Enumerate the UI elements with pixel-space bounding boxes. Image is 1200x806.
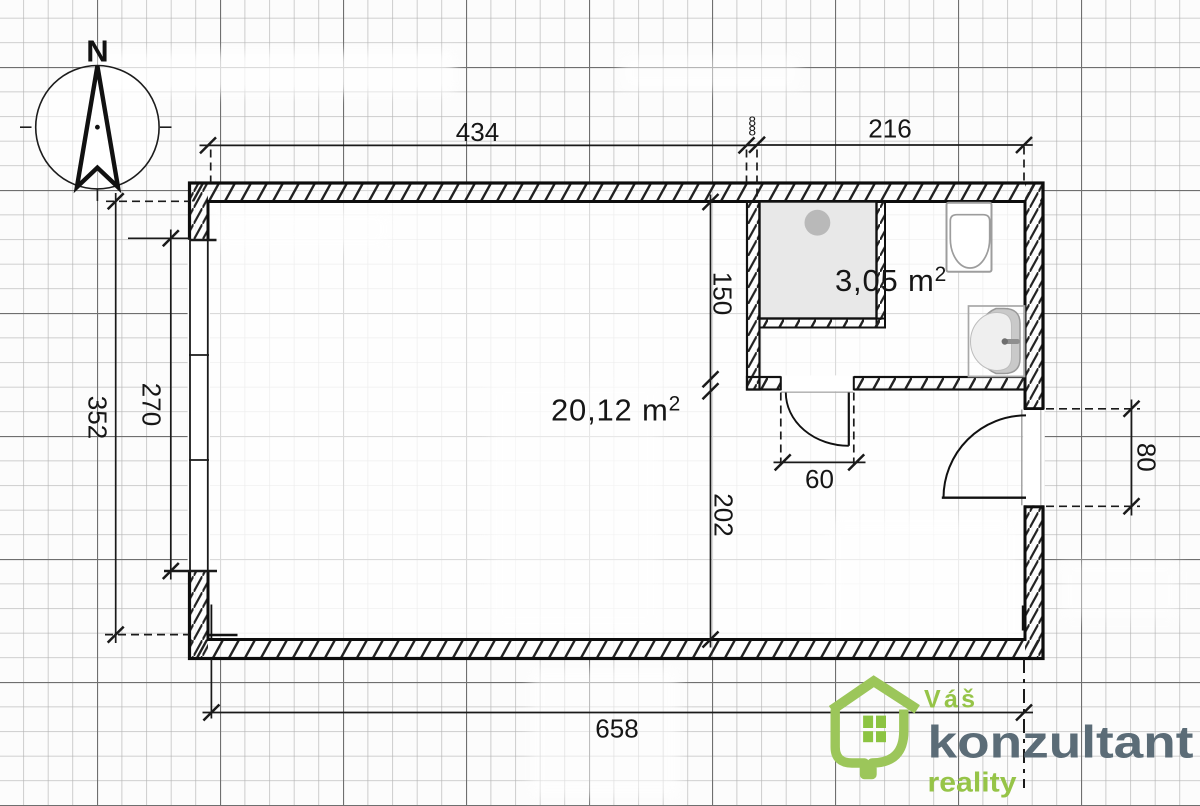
svg-text:434: 434 [456,117,499,147]
svg-text:202: 202 [709,493,739,536]
svg-text:150: 150 [708,272,738,315]
svg-text:N: N [86,34,108,69]
svg-text:352: 352 [83,396,113,439]
svg-text:konzultant: konzultant [928,717,1194,768]
svg-text:3,05 m2: 3,05 m2 [835,263,947,298]
svg-text:8: 8 [749,124,757,139]
svg-text:270: 270 [137,383,167,426]
svg-text:80: 80 [1132,443,1162,472]
svg-text:Váš: Váš [924,686,975,714]
svg-text:reality: reality [928,767,1017,798]
svg-text:20,12 m2: 20,12 m2 [551,393,681,428]
svg-text:60: 60 [805,464,834,494]
svg-text:658: 658 [595,714,638,744]
svg-text:216: 216 [868,114,911,144]
